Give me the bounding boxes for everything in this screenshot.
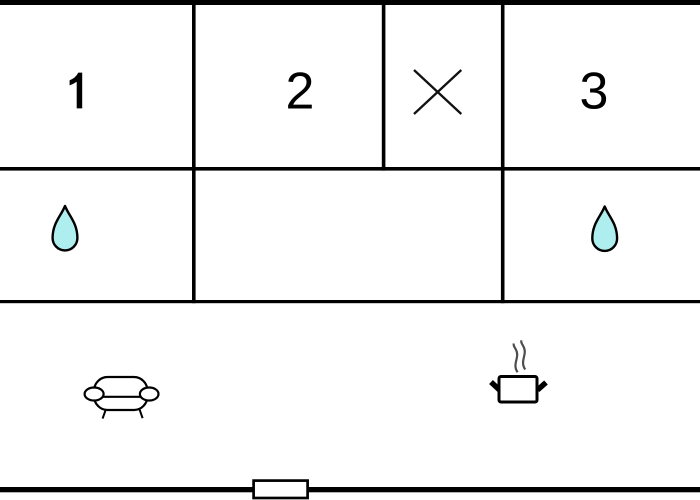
svg-text:2: 2 bbox=[286, 63, 315, 121]
svg-text:3: 3 bbox=[580, 63, 609, 121]
